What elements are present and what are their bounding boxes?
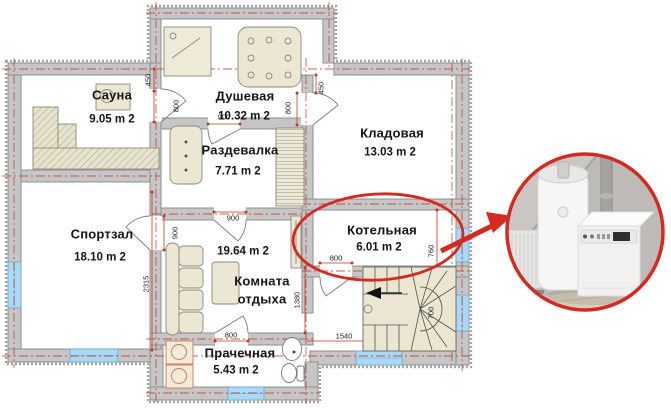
room-label-dressing: Раздевалка (202, 144, 279, 157)
dim-450-storage: 450 (317, 82, 325, 95)
dim-900-rest-door: 900 (227, 214, 240, 222)
room-area-rest: 19.64 m 2 (217, 246, 269, 258)
dim-1380-rest: 1380 (293, 292, 301, 309)
floor-plan-page: Сауна 9.05 m 2 Душевая 10.32 m 2 Раздева… (0, 0, 671, 408)
dim-1540-corridor: 1540 (336, 332, 353, 340)
room-area-sauna: 9.05 m 2 (89, 114, 134, 126)
boiler-room-photo (504, 142, 668, 315)
room-area-gym: 18.10 m 2 (74, 252, 126, 264)
dim-800-boiler-door: 800 (330, 254, 343, 262)
room-area-laundry: 5.43 m 2 (213, 365, 258, 377)
dim-800-storage-door: 800 (284, 102, 292, 115)
room-label-boiler: Котельная (347, 224, 417, 237)
room-area-storage: 13.03 m 2 (364, 147, 416, 159)
dim-800-sauna-door: 800 (172, 100, 180, 113)
jacuzzi (238, 27, 301, 87)
sink (283, 338, 302, 361)
dim-900-gym-door: 900 (171, 227, 179, 240)
dim-800-laundry-door: 800 (225, 331, 238, 339)
dim-450-sauna-door: 450 (144, 74, 152, 87)
room-label-gym: Спортзал (71, 228, 134, 241)
dim-760-boiler: 760 (427, 245, 435, 258)
sofa (166, 243, 203, 335)
room-area-dressing: 7.71 m 2 (215, 166, 260, 178)
dim-900-shower-door: 900 (218, 113, 231, 121)
wall-bump-left (150, 19, 161, 63)
room-area-boiler: 6.01 m 2 (356, 242, 401, 254)
dim-700-stairs: 700 (427, 307, 435, 320)
dim-2315-gym: 2315 (142, 276, 150, 293)
wall-bump-right (323, 19, 334, 63)
wall-left (8, 75, 21, 362)
room-label-shower: Душевая (216, 90, 275, 103)
wardrobe (276, 128, 304, 206)
room-label-rest-line1: Комната (234, 275, 289, 288)
washing-machines (166, 341, 193, 388)
door-rest (214, 220, 246, 241)
room-label-sauna: Сауна (92, 89, 132, 102)
room-label-laundry: Прачечная (205, 347, 276, 360)
room-label-storage: Кладовая (360, 127, 424, 140)
floor-plan-drawing (0, 0, 671, 408)
boiler-display (613, 232, 630, 241)
wall-laundry-right (305, 362, 318, 387)
wall-bump-top (150, 8, 334, 19)
room-label-rest-line2: отдыха (238, 293, 287, 306)
door-storage (313, 93, 338, 125)
toilet (282, 364, 305, 383)
